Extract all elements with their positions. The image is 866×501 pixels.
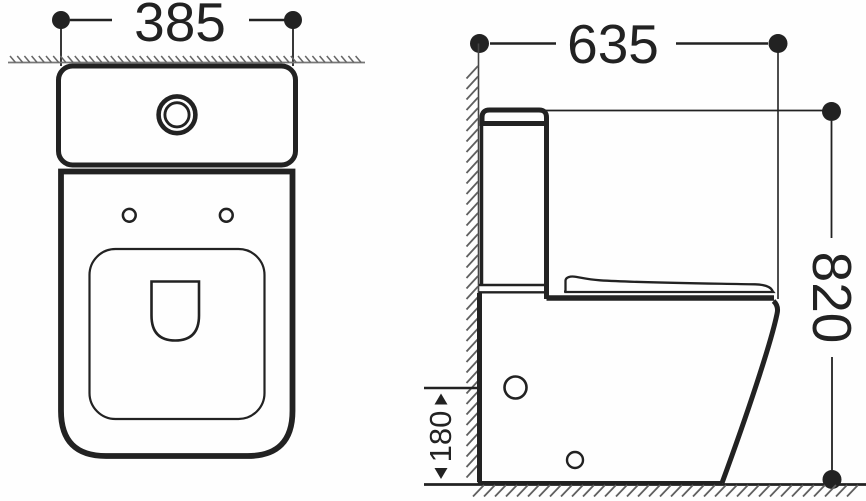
svg-text:385: 385 [134, 0, 226, 53]
svg-text:635: 635 [567, 13, 659, 75]
svg-text:180: 180 [423, 411, 458, 463]
svg-text:820: 820 [801, 252, 863, 344]
